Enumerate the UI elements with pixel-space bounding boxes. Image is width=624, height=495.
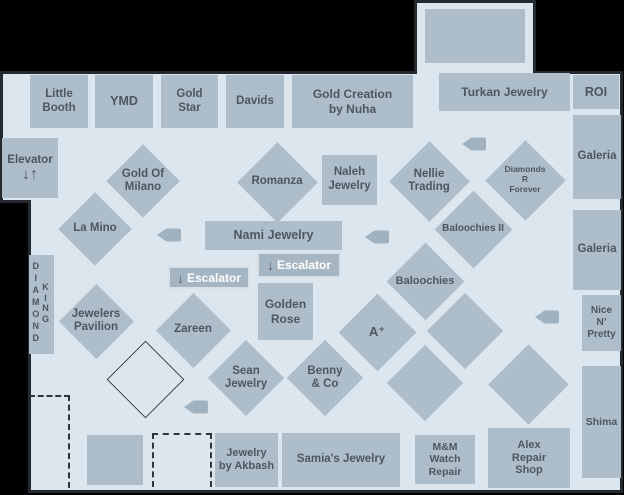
elevator-updown-arrows-icon: ↓↑ xyxy=(22,167,38,182)
mm-watch-repair-label: M&M Watch Repair xyxy=(429,441,462,478)
alex-repair-shop: Alex Repair Shop xyxy=(488,428,570,488)
samias-jewelry-label: Samia's Jewelry xyxy=(297,453,385,467)
ymd: YMD xyxy=(95,75,153,128)
escalator-lower: ↓Escalator xyxy=(168,266,250,289)
mall-floor-map: Little BoothYMDGold StarDavidsGold Creat… xyxy=(0,0,624,495)
security-camera-icon xyxy=(534,308,560,326)
samias-jewelry: Samia's Jewelry xyxy=(282,433,400,487)
gold-creation-by-nuha-label: Gold Creation by Nuha xyxy=(313,87,392,115)
jewelry-by-akbash: Jewelry by Akbash xyxy=(215,433,278,487)
gold-star: Gold Star xyxy=(161,75,218,128)
davids-label: Davids xyxy=(236,95,274,109)
lower-vacant-room xyxy=(87,435,143,485)
galeria-lower: Galeria xyxy=(573,210,621,290)
naleh-jewelry-label: Naleh Jewelry xyxy=(328,166,370,193)
elevator: Elevator↓↑ xyxy=(2,138,58,198)
diamond-king-word2: KING xyxy=(42,282,49,324)
jewelry-by-akbash-label: Jewelry by Akbash xyxy=(219,447,274,473)
galeria-upper-label: Galeria xyxy=(578,150,617,164)
little-booth-label: Little Booth xyxy=(42,88,75,115)
security-camera-icon xyxy=(364,228,390,246)
turkan-jewelry-label: Turkan Jewelry xyxy=(461,85,547,99)
upper-vacant-room xyxy=(425,9,525,63)
vacant-dashed-space xyxy=(152,433,212,487)
nami-jewelry: Nami Jewelry xyxy=(205,221,342,250)
diamond-king: DIAMONDKING xyxy=(29,255,54,354)
nice-n-pretty-label: Nice N’ Pretty xyxy=(587,305,615,340)
galeria-upper: Galeria xyxy=(573,115,621,199)
ymd-label: YMD xyxy=(110,94,138,109)
gold-creation-by-nuha: Gold Creation by Nuha xyxy=(292,75,413,128)
escalator-label: Escalator xyxy=(277,258,331,272)
nice-n-pretty: Nice N’ Pretty xyxy=(582,295,621,351)
vacant-dashed-space xyxy=(29,395,70,488)
shima-label: Shima xyxy=(586,416,618,428)
davids: Davids xyxy=(226,75,284,128)
shima: Shima xyxy=(582,366,621,478)
security-camera-icon xyxy=(461,135,487,153)
galeria-lower-label: Galeria xyxy=(578,243,617,257)
escalator-down-arrow-icon: ↓ xyxy=(177,270,184,286)
little-booth: Little Booth xyxy=(30,75,88,128)
roi: ROI xyxy=(573,75,619,109)
elevator-label: Elevator xyxy=(7,154,52,168)
alex-repair-shop-label: Alex Repair Shop xyxy=(512,439,546,478)
escalator-label: Escalator xyxy=(187,271,241,285)
turkan-jewelry: Turkan Jewelry xyxy=(439,73,570,111)
escalator-upper: ↓Escalator xyxy=(257,252,341,278)
gold-star-label: Gold Star xyxy=(176,88,202,115)
security-camera-icon xyxy=(183,398,209,416)
nami-jewelry-label: Nami Jewelry xyxy=(234,228,314,243)
golden-rose: Golden Rose xyxy=(258,283,313,340)
diamond-king-word1: DIAMOND xyxy=(32,260,40,344)
security-camera-icon xyxy=(156,226,182,244)
escalator-down-arrow-icon: ↓ xyxy=(267,257,274,273)
naleh-jewelry: Naleh Jewelry xyxy=(322,155,377,205)
golden-rose-label: Golden Rose xyxy=(265,297,306,325)
mm-watch-repair: M&M Watch Repair xyxy=(415,435,475,484)
roi-label: ROI xyxy=(585,85,607,100)
